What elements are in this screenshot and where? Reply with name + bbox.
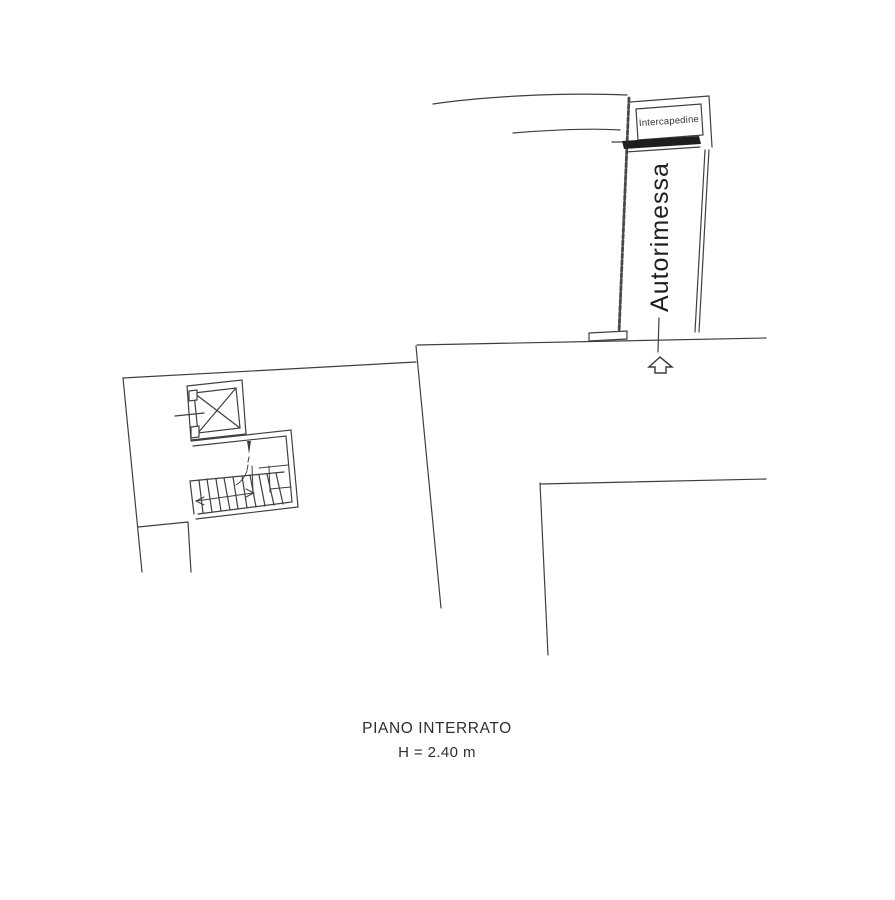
elevator-door-jamb-bottom — [191, 426, 199, 438]
outline-left-edge — [123, 378, 142, 572]
ramp-left-wall-hatched — [619, 98, 629, 333]
ramp-direction-arrow-icon — [649, 357, 672, 373]
floor-plan-drawing — [0, 0, 895, 900]
elevator-door-jamb-top — [189, 390, 197, 401]
plan-title: PIANO INTERRATO — [307, 720, 567, 738]
stair-wall-outer — [191, 430, 298, 519]
ramp-left-wall-foot — [589, 331, 627, 341]
cavity-outer-top — [630, 96, 709, 102]
elevator-cross-icon — [194, 388, 240, 433]
plan-height-note: H = 2.40 m — [307, 744, 567, 761]
staircase — [190, 430, 298, 519]
stair-flight-left-edge — [190, 481, 194, 514]
elevator-shaft — [175, 380, 246, 440]
outline-lower-horizontal — [138, 522, 188, 527]
floor-plan-page: Intercapedine Autorimessa PIANO INTERRAT… — [0, 0, 895, 900]
outline-top-curve — [433, 94, 627, 104]
outline-inner-vertical — [540, 483, 548, 655]
outline-inner-horizontal — [540, 479, 766, 484]
outline-main-vertical — [416, 346, 441, 608]
stair-wall-inner — [193, 436, 292, 514]
walk-line-start-arrow-icon — [247, 441, 251, 454]
cavity-outer-right — [709, 96, 712, 147]
autorimessa-label: Autorimessa — [645, 137, 675, 337]
outline-top-inner-line — [513, 129, 620, 133]
intercapedine-label: Intercapedine — [634, 105, 704, 140]
outline-lower-vertical — [188, 522, 191, 572]
outline-left-top — [123, 362, 416, 378]
